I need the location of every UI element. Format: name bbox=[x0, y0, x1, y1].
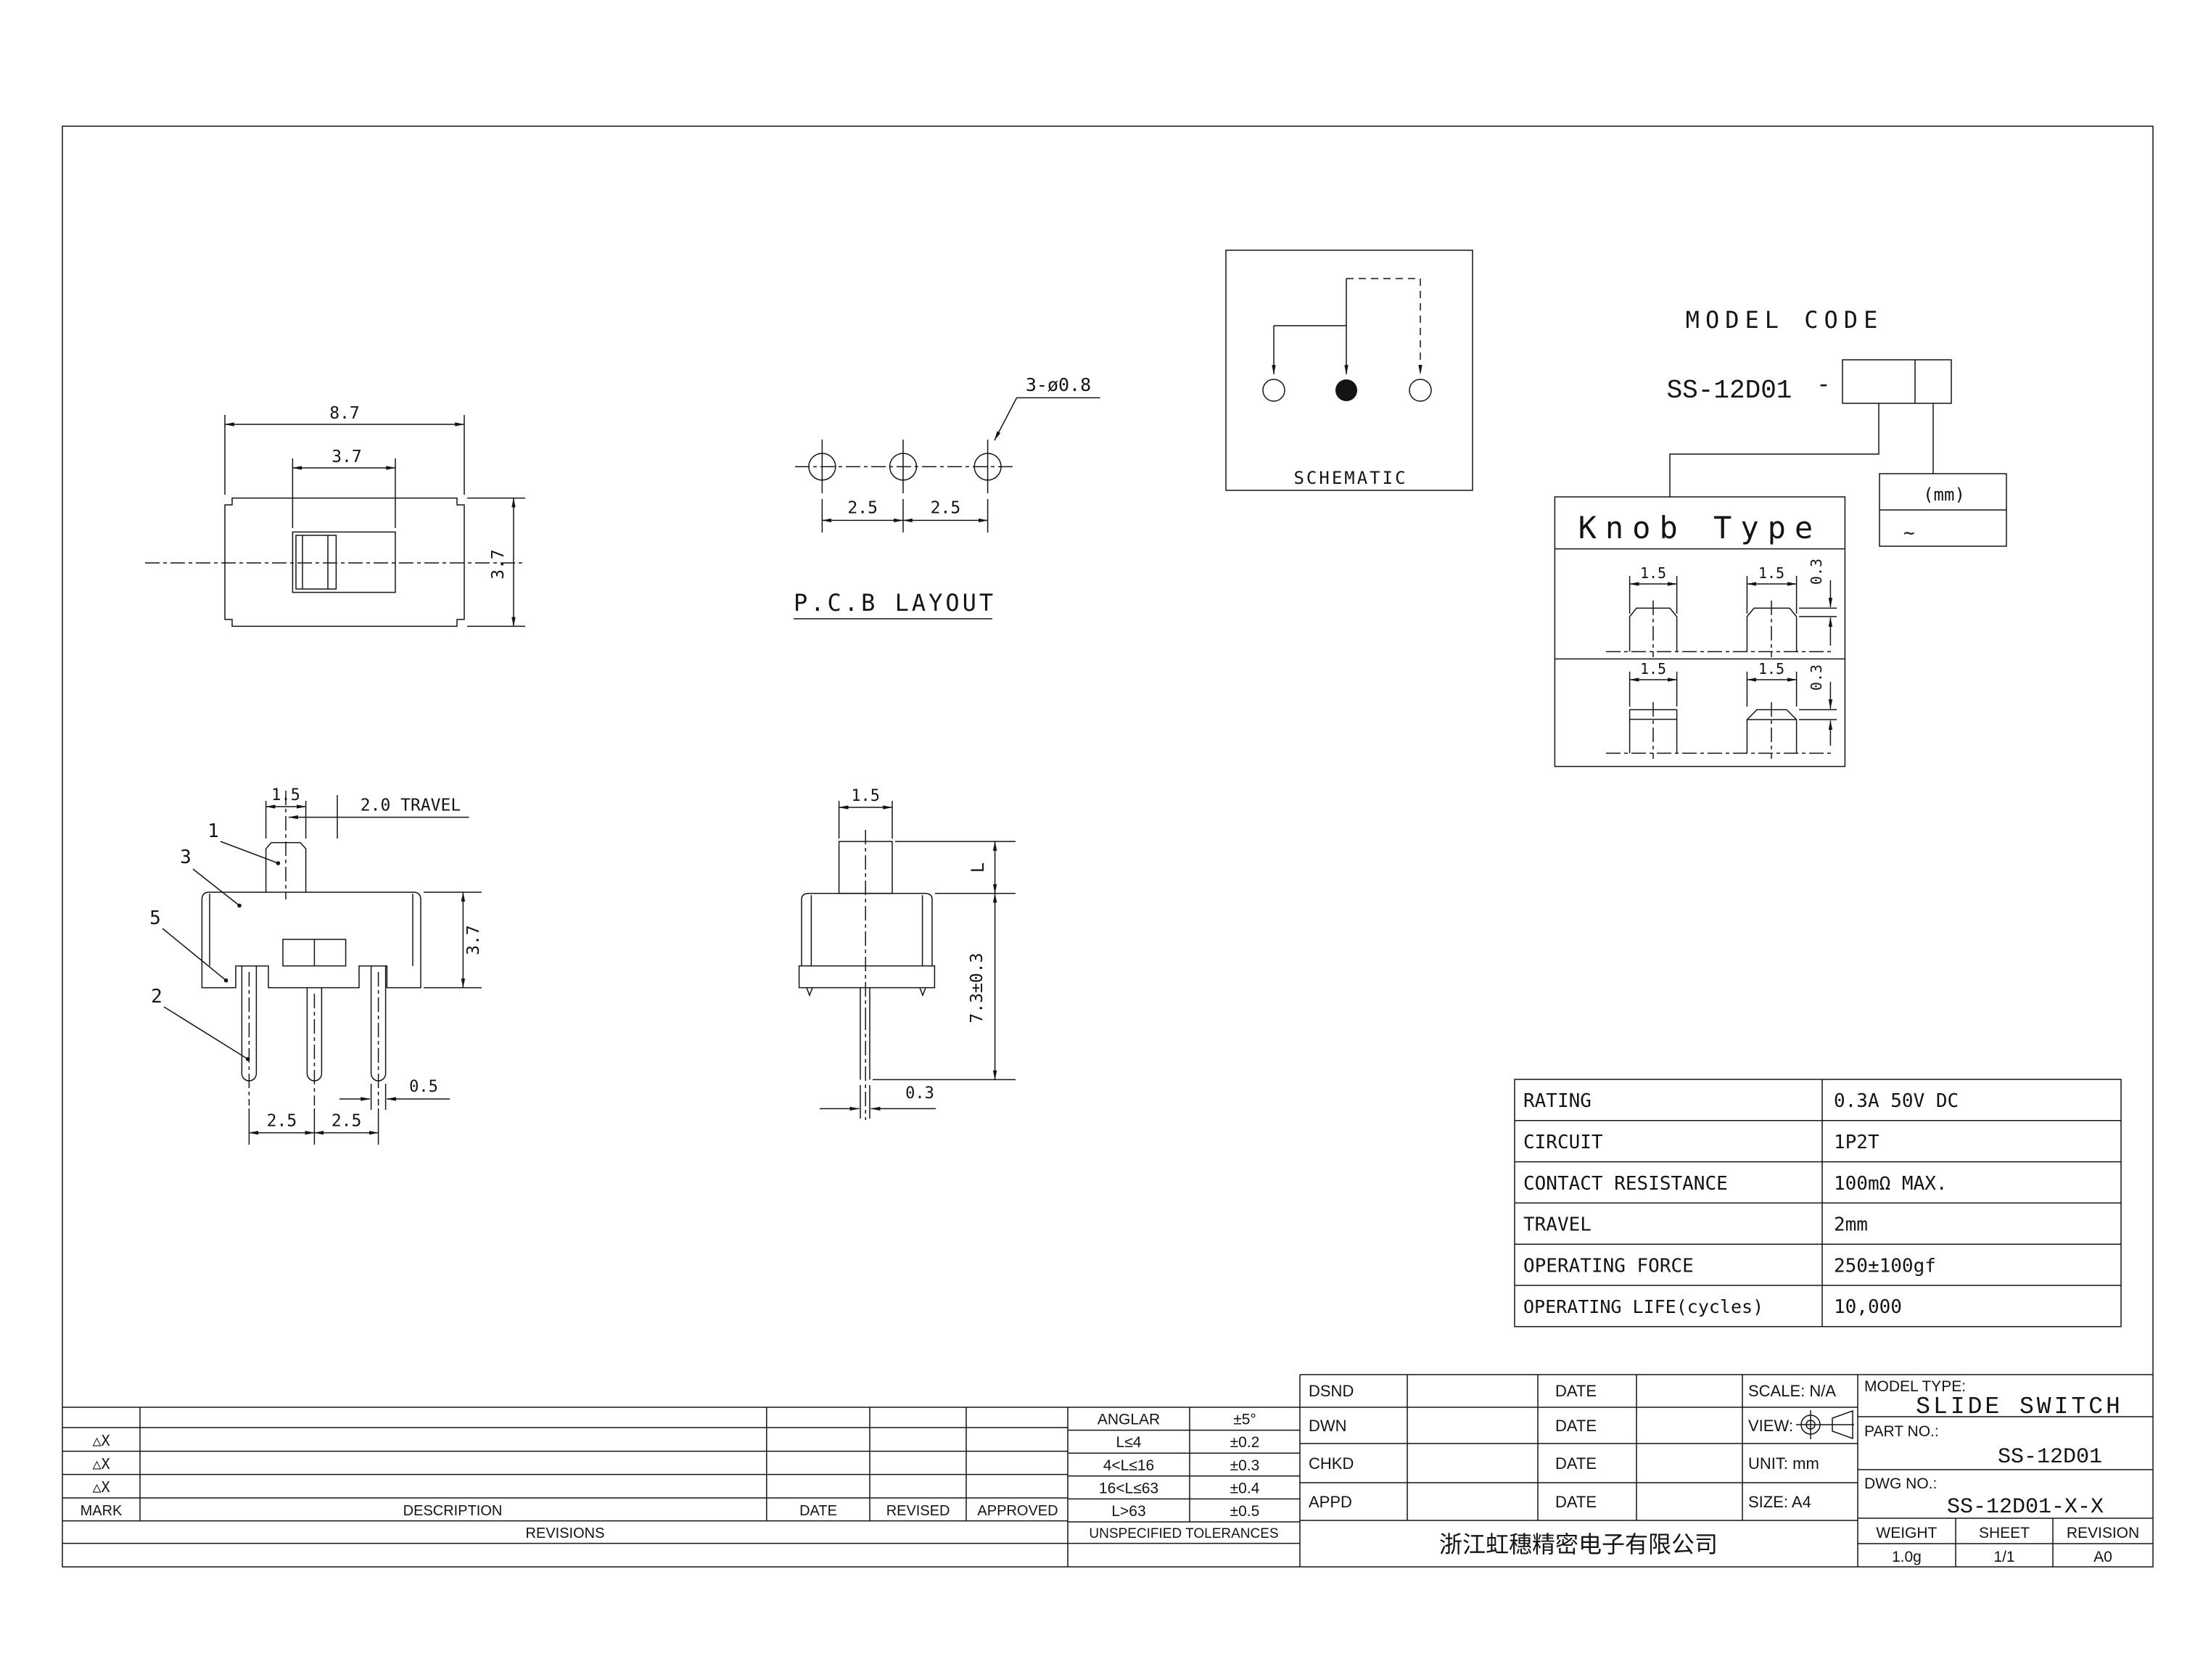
unit-box-mm: (mm) bbox=[1923, 485, 1965, 505]
drawing-canvas: 8.7 3.7 3.7 2.5 2.5 3-ø0.8 P.C.B LAYOUT bbox=[0, 0, 2211, 1680]
model-code-title: MODEL CODE bbox=[1686, 306, 1884, 334]
company-name: 浙江虹穗精密电子有限公司 bbox=[1439, 1531, 1718, 1557]
spec-label: TRAVEL bbox=[1523, 1214, 1592, 1236]
knob-row2-dim-height: 0.3 bbox=[1808, 664, 1825, 691]
schematic: SCHEMATIC bbox=[1226, 250, 1473, 490]
titleblock-row-date: DATE bbox=[1555, 1382, 1597, 1400]
part-no-label: PART NO.: bbox=[1864, 1423, 1939, 1440]
front-callout-1: 1 bbox=[207, 820, 219, 842]
tol-range: L>63 bbox=[1111, 1503, 1145, 1520]
revision-mark: △X bbox=[92, 1432, 110, 1449]
titleblock-row-label: APPD bbox=[1309, 1493, 1352, 1511]
top-view-dim-height: 3.7 bbox=[489, 549, 508, 580]
top-view-dim-window: 3.7 bbox=[332, 448, 362, 466]
front-view: 1.5 2.0 TRAVEL 3.7 0.5 2.5 2.5 1 3 5 2 bbox=[149, 786, 483, 1145]
knob3-dim-width: 1.5 bbox=[1640, 660, 1666, 678]
spec-value: 100mΩ MAX. bbox=[1834, 1173, 1948, 1195]
top-view: 8.7 3.7 3.7 bbox=[145, 404, 525, 626]
size-label: SIZE: A4 bbox=[1748, 1493, 1811, 1511]
pcb-dim-pitch-2: 2.5 bbox=[931, 498, 961, 517]
side-dim-pin: 0.3 bbox=[905, 1084, 934, 1103]
front-dim-knob-width: 1.5 bbox=[271, 786, 300, 804]
spec-label: CONTACT RESISTANCE bbox=[1523, 1173, 1728, 1195]
tol-value: ±0.3 bbox=[1230, 1457, 1260, 1474]
tol-value: ±5° bbox=[1233, 1412, 1256, 1428]
title-block: DSND DATE DWN DATE CHKD DATE APPD DATE S… bbox=[1300, 1375, 2153, 1567]
scale-label: SCALE: N/A bbox=[1748, 1382, 1836, 1400]
third-angle-projection-icon bbox=[1796, 1410, 1854, 1439]
sheet-value: 1/1 bbox=[1993, 1549, 2014, 1565]
front-callout-3: 3 bbox=[180, 847, 192, 868]
spec-value: 1P2T bbox=[1834, 1132, 1879, 1153]
tol-range: ANGLAR bbox=[1098, 1412, 1160, 1428]
model-code-separator: - bbox=[1816, 372, 1830, 399]
spec-value: 10,000 bbox=[1834, 1296, 1902, 1318]
tolerance-table: ANGLAR ±5° L≤4 ±0.2 4<L≤16 ±0.3 16<L≤63 … bbox=[1068, 1407, 1300, 1541]
spec-label: OPERATING LIFE(cycles) bbox=[1523, 1296, 1763, 1317]
front-callout-2: 2 bbox=[151, 986, 162, 1008]
drawing-sheet: 8.7 3.7 3.7 2.5 2.5 3-ø0.8 P.C.B LAYOUT bbox=[0, 0, 2211, 1680]
spec-label: CIRCUIT bbox=[1523, 1132, 1603, 1153]
spec-value: 2mm bbox=[1834, 1214, 1868, 1236]
model-code: MODEL CODE SS-12D01 - bbox=[1667, 306, 1951, 497]
spec-value: 0.3A 50V DC bbox=[1834, 1090, 1959, 1112]
revisions-footer: REVISIONS bbox=[526, 1525, 605, 1541]
part-no-value: SS-12D01 bbox=[1998, 1445, 2102, 1470]
weight-value: 1.0g bbox=[1892, 1549, 1922, 1565]
tolerance-footer: UNSPECIFIED TOLERANCES bbox=[1089, 1526, 1278, 1541]
top-view-dim-width: 8.7 bbox=[329, 404, 360, 423]
titleblock-row-label: CHKD bbox=[1309, 1454, 1354, 1473]
knob1-dim-width: 1.5 bbox=[1640, 564, 1666, 582]
titleblock-row-date: DATE bbox=[1555, 1417, 1597, 1435]
side-dim-knob-width: 1.5 bbox=[851, 787, 880, 805]
schematic-common-contact bbox=[1335, 379, 1357, 401]
tol-value: ±0.4 bbox=[1230, 1480, 1260, 1496]
tol-value: ±0.2 bbox=[1230, 1434, 1260, 1451]
front-dim-height: 3.7 bbox=[464, 925, 483, 955]
revision-value: A0 bbox=[2093, 1549, 2112, 1565]
revision-mark: △X bbox=[92, 1478, 110, 1496]
front-dim-travel: 2.0 TRAVEL bbox=[361, 796, 461, 815]
revision-label: REVISION bbox=[2067, 1525, 2139, 1541]
unit-box: (mm) ~ bbox=[1879, 474, 2006, 546]
revisions-header-revised: REVISED bbox=[886, 1503, 950, 1519]
tol-value: ±0.5 bbox=[1230, 1503, 1260, 1520]
unit-label: UNIT: mm bbox=[1748, 1454, 1819, 1473]
revisions-header-date: DATE bbox=[799, 1503, 837, 1519]
side-view: 1.5 L 7.3±0.3 0.3 bbox=[799, 787, 1016, 1120]
sheet-frame bbox=[62, 126, 2153, 1567]
model-type-value: SLIDE SWITCH bbox=[1916, 1393, 2123, 1420]
pcb-layout: 2.5 2.5 3-ø0.8 P.C.B LAYOUT bbox=[794, 374, 1100, 619]
tol-range: L≤4 bbox=[1116, 1434, 1142, 1451]
view-label: VIEW: bbox=[1748, 1417, 1793, 1435]
pcb-hole-note: 3-ø0.8 bbox=[1026, 374, 1091, 395]
unit-box-tilde: ~ bbox=[1903, 522, 1915, 544]
titleblock-row-date: DATE bbox=[1555, 1493, 1597, 1511]
spec-value: 250±100gf bbox=[1834, 1255, 1936, 1277]
revisions-header-mark: MARK bbox=[81, 1503, 123, 1519]
front-dim-pitch-1: 2.5 bbox=[267, 1112, 297, 1131]
schematic-label: SCHEMATIC bbox=[1293, 468, 1407, 488]
titleblock-row-label: DWN bbox=[1309, 1417, 1347, 1435]
revision-mark: △X bbox=[92, 1455, 110, 1473]
front-dim-pitch-2: 2.5 bbox=[332, 1112, 362, 1131]
revisions-header-description: DESCRIPTION bbox=[403, 1503, 503, 1519]
titleblock-row-date: DATE bbox=[1555, 1454, 1597, 1473]
front-dim-pin-width: 0.5 bbox=[409, 1078, 438, 1096]
front-callout-5: 5 bbox=[149, 907, 161, 929]
tol-range: 16<L≤63 bbox=[1099, 1480, 1158, 1496]
model-code-value: SS-12D01 bbox=[1667, 376, 1792, 405]
side-dim-overall: 7.3±0.3 bbox=[968, 953, 987, 1024]
pcb-layout-title: P.C.B LAYOUT bbox=[794, 589, 996, 617]
dwg-no-label: DWG NO.: bbox=[1864, 1475, 1937, 1492]
weight-label: WEIGHT bbox=[1876, 1525, 1937, 1541]
knob-row1-dim-height: 0.3 bbox=[1808, 559, 1825, 585]
knob-type-title: Knob Type bbox=[1578, 510, 1822, 545]
knob4-dim-width: 1.5 bbox=[1758, 660, 1784, 678]
pcb-dim-pitch-1: 2.5 bbox=[847, 498, 878, 517]
titleblock-row-label: DSND bbox=[1309, 1382, 1354, 1400]
knob-type: Knob Type 1.5 1.5 0.3 1.5 1. bbox=[1555, 497, 1845, 767]
spec-label: OPERATING FORCE bbox=[1523, 1255, 1694, 1277]
spec-label: RATING bbox=[1523, 1090, 1592, 1112]
revisions-header-approved: APPROVED bbox=[977, 1503, 1058, 1519]
spec-table: RATING 0.3A 50V DC CIRCUIT 1P2T CONTACT … bbox=[1515, 1079, 2121, 1327]
sheet-label: SHEET bbox=[1979, 1525, 2030, 1541]
model-code-suffix-box bbox=[1842, 360, 1951, 403]
dwg-no-value: SS-12D01-X-X bbox=[1947, 1495, 2104, 1520]
knob2-dim-width: 1.5 bbox=[1758, 564, 1784, 582]
model-type-label: MODEL TYPE: bbox=[1864, 1378, 1966, 1395]
side-dim-knob-height: L bbox=[968, 862, 988, 873]
tol-range: 4<L≤16 bbox=[1103, 1457, 1155, 1474]
